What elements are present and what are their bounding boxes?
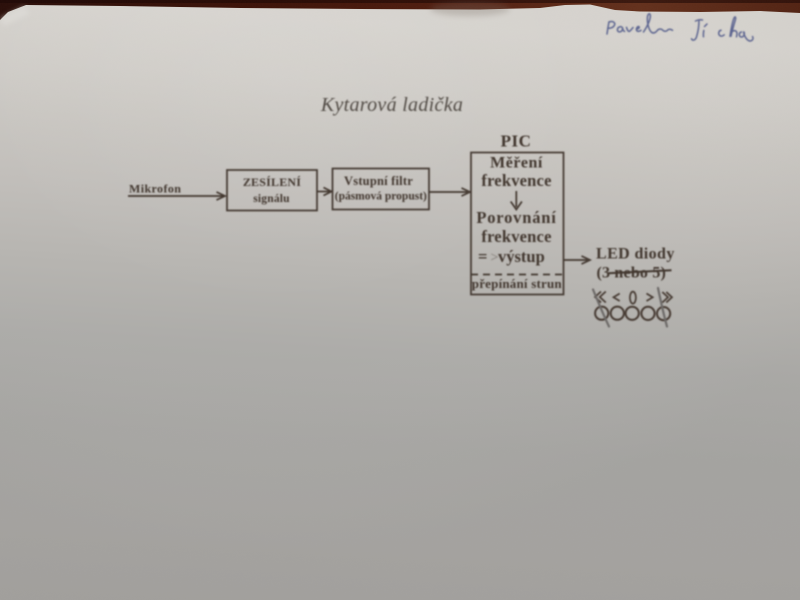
svg-text:Porovnání: Porovnání: [476, 208, 556, 227]
svg-text:ZESÍLENÍ: ZESÍLENÍ: [243, 175, 301, 189]
svg-text:Měření: Měření: [490, 155, 543, 172]
svg-text:(pásmová propust): (pásmová propust): [335, 191, 427, 203]
svg-text:LED diody: LED diody: [596, 246, 675, 263]
svg-text:frekvence: frekvence: [481, 227, 551, 246]
svg-text:Mikrofon: Mikrofon: [129, 182, 181, 196]
svg-text:výstup: výstup: [498, 247, 545, 266]
svg-text:frekvence: frekvence: [481, 171, 551, 190]
svg-text:přepínání strun: přepínání strun: [472, 276, 563, 291]
svg-text:(3 nebo 5): (3 nebo 5): [597, 265, 667, 282]
svg-text:signálu: signálu: [253, 193, 290, 205]
svg-text:Vstupní filtr: Vstupní filtr: [344, 174, 413, 188]
svg-text:=: =: [478, 247, 487, 266]
svg-text:PIC: PIC: [501, 132, 532, 151]
svg-text:Kytarová ladička: Kytarová ladička: [320, 94, 463, 116]
